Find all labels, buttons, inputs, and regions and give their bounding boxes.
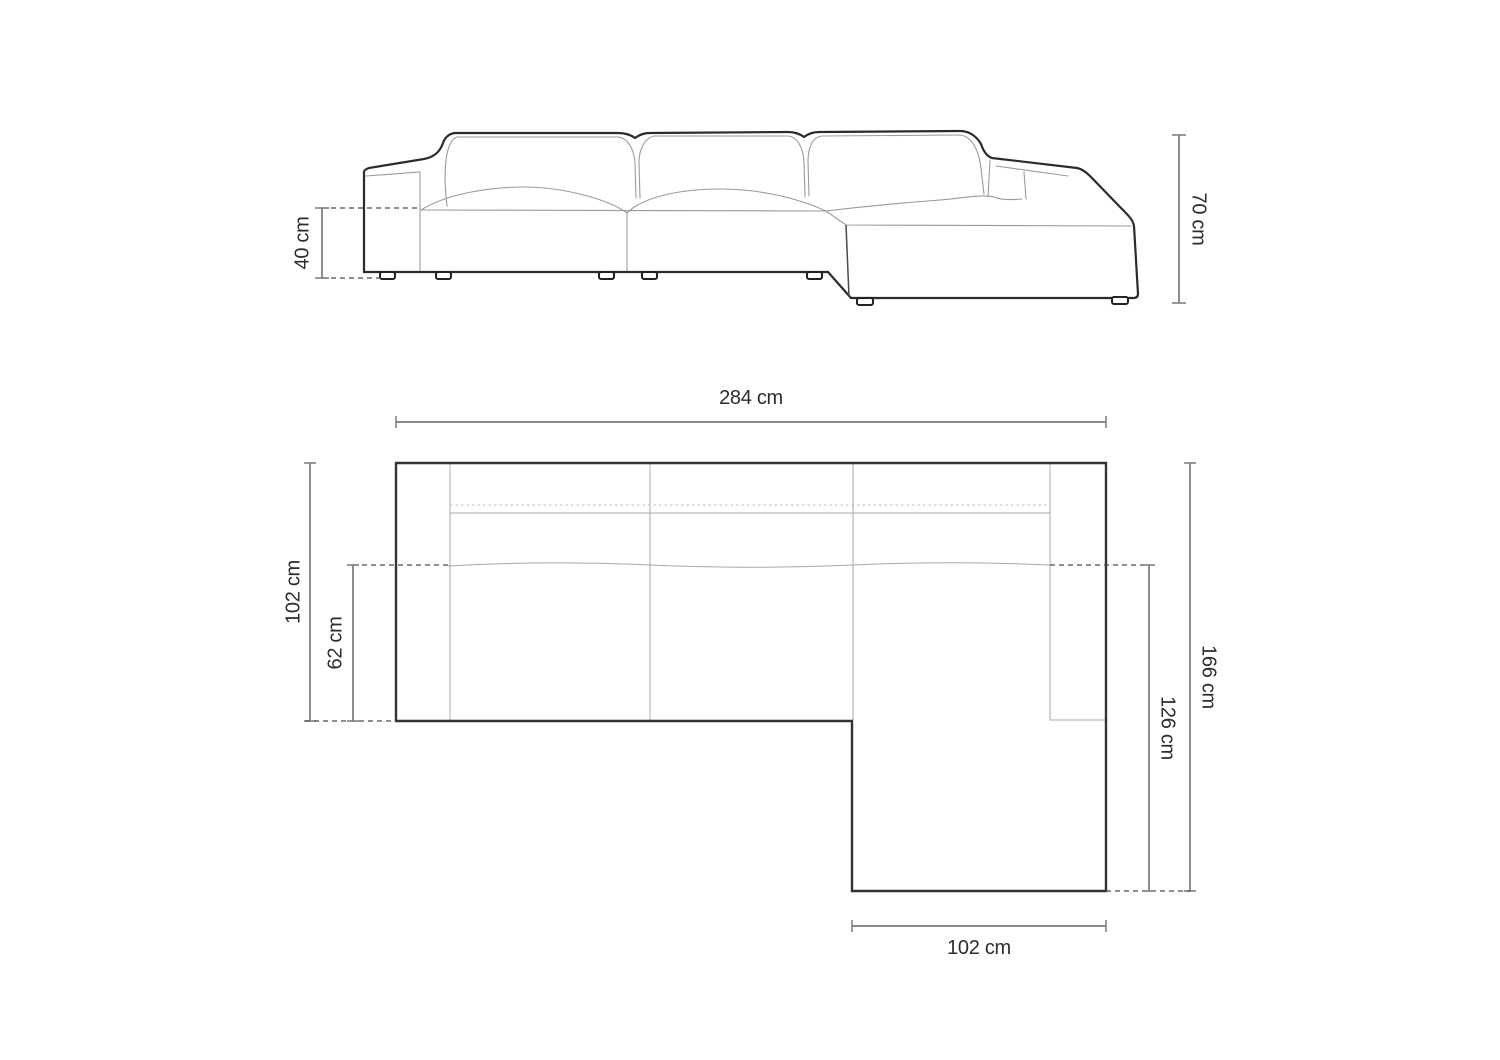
seat-height-label: 40 cm xyxy=(291,217,313,270)
overall-height-label: 70 cm xyxy=(1188,193,1210,246)
plan-view: 284 cm 102 cm 62 cm 166 cm 1 xyxy=(282,387,1219,959)
chaise-width-label: 102 cm xyxy=(947,937,1011,959)
dimension-chaise-depth: 126 cm xyxy=(1050,565,1190,891)
front-interior-seams xyxy=(366,135,1131,272)
dimension-seat-height: 40 cm xyxy=(291,208,420,278)
dimension-seat-depth: 62 cm xyxy=(324,565,448,721)
dimension-overall-depth: 166 cm xyxy=(1184,463,1220,891)
overall-width-label: 284 cm xyxy=(719,387,783,409)
dimension-overall-width: 284 cm xyxy=(396,387,1106,428)
sofa-legs xyxy=(380,272,1128,305)
plan-interior-lines xyxy=(448,464,1105,720)
sofa-depth-label: 102 cm xyxy=(282,560,304,624)
dimension-chaise-width: 102 cm xyxy=(852,920,1106,959)
plan-outline xyxy=(396,463,1106,891)
chaise-depth-label: 126 cm xyxy=(1157,696,1179,760)
front-elevation-view: 40 cm 70 cm xyxy=(291,131,1209,305)
dimension-overall-height: 70 cm xyxy=(1172,135,1210,303)
seat-depth-label: 62 cm xyxy=(324,617,346,670)
sofa-dimension-diagram: 40 cm 70 cm 284 cm xyxy=(0,0,1500,1060)
sofa-silhouette xyxy=(364,131,1138,298)
dimension-sofa-depth: 102 cm xyxy=(282,463,396,721)
overall-depth-label: 166 cm xyxy=(1198,645,1220,709)
